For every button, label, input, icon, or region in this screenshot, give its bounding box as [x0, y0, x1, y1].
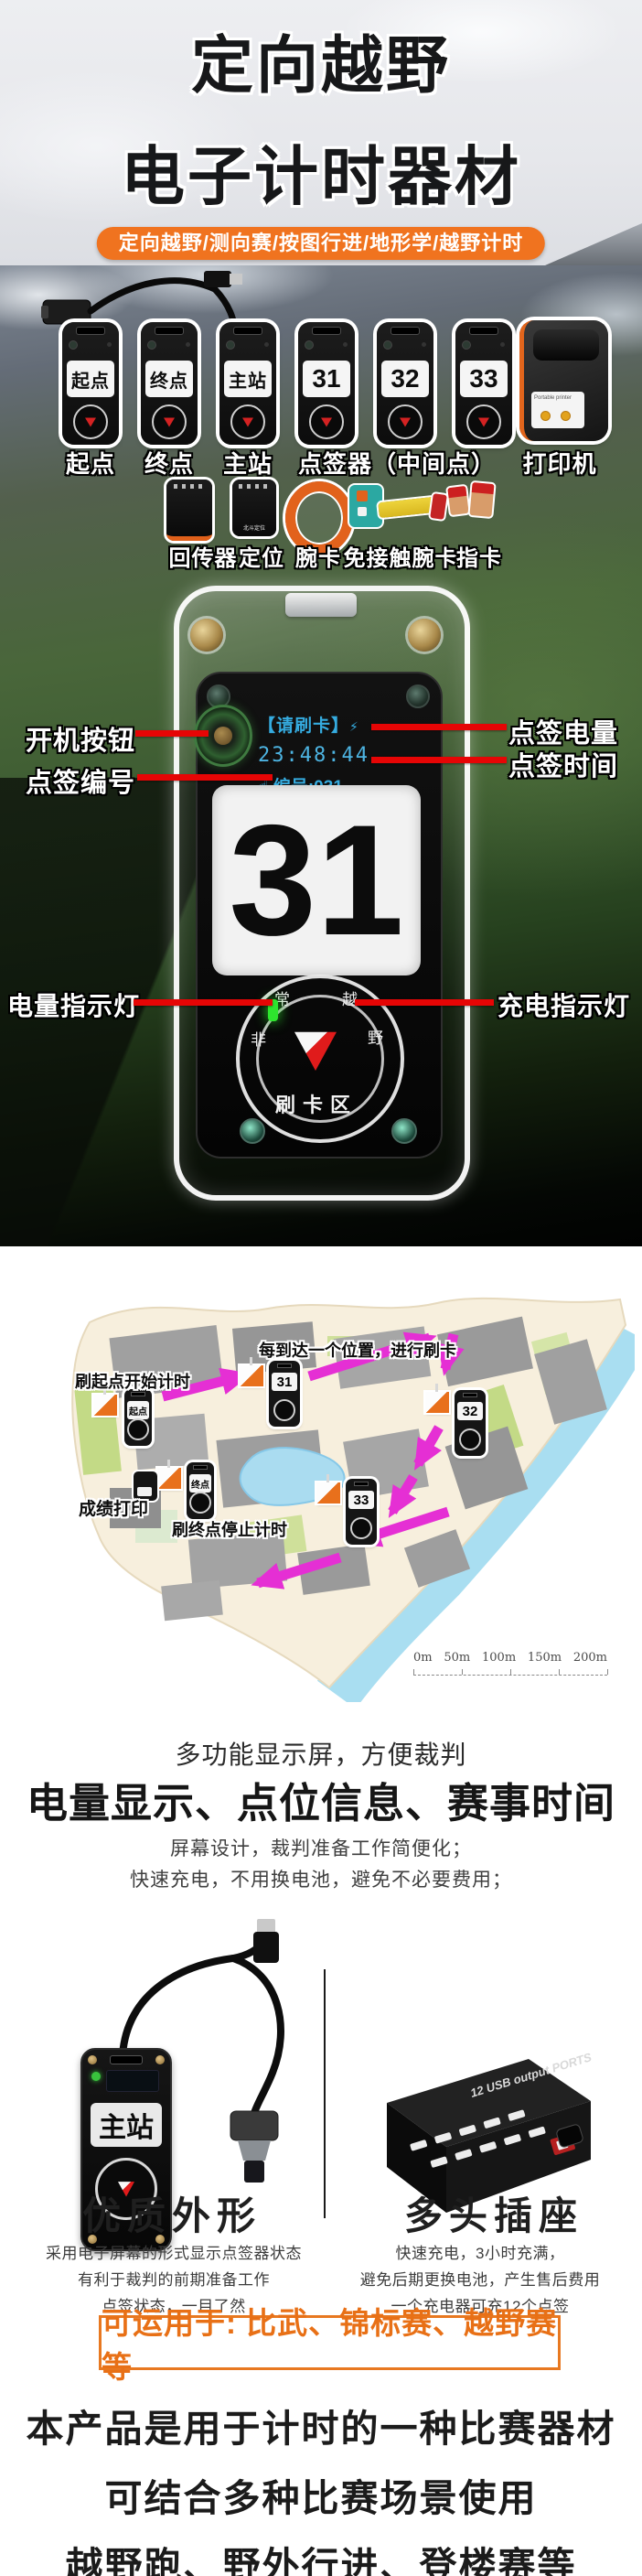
- feature-headline-large: 电量显示、点位信息、赛事时间: [0, 1770, 642, 1829]
- device-label: 起点: [67, 361, 114, 397]
- mountain-silhouette: [545, 223, 642, 265]
- brass-screw: [408, 619, 441, 652]
- device-master: 主站: [219, 322, 276, 445]
- gps-leds: [239, 484, 270, 489]
- map-note-top: 每到达一个位置，进行刷卡: [259, 1338, 456, 1362]
- scale-label: 0m: [413, 1651, 433, 1665]
- callout-line-battery-led: [134, 999, 273, 1006]
- corner-screw: [155, 2055, 165, 2064]
- swipe-dial: [152, 404, 187, 439]
- scale-label: 100m: [482, 1651, 516, 1665]
- device-label: 33: [460, 361, 508, 397]
- scale-tick: [559, 1669, 560, 1675]
- device-checkpoint-32: 32: [377, 322, 433, 445]
- map-scale-bar: 0m 50m 100m 150m 200m: [413, 1651, 607, 1676]
- buckle-window: [358, 507, 367, 516]
- product-title-left: 优质外形: [71, 2185, 273, 2241]
- swipe-dial: [73, 404, 108, 439]
- callout-line-power: [135, 730, 209, 737]
- contactless-buckle: [349, 485, 382, 527]
- desc-line: 采用电子屏幕的形式显示点签器状态: [23, 2240, 325, 2267]
- caption-master: 主站: [207, 446, 289, 480]
- device-slot: [312, 327, 341, 335]
- desc-line: 快速充电，3小时充满，: [338, 2240, 622, 2267]
- swipe-dial: [466, 404, 501, 439]
- device-finish: 终点: [141, 322, 198, 445]
- map-device-dial: [459, 1428, 481, 1450]
- scale-label: 50m: [444, 1651, 470, 1665]
- sensor-dot: [343, 342, 348, 347]
- device-start: 起点: [62, 322, 119, 445]
- map-device-dial: [127, 1418, 149, 1440]
- sensor-dot: [500, 342, 505, 347]
- callout-tag-number: 点签编号: [13, 761, 135, 800]
- map-station-32: 32: [455, 1390, 486, 1456]
- map-station-label: 起点: [127, 1401, 149, 1419]
- led-dot: [69, 340, 78, 350]
- device-label: 主站: [224, 361, 272, 397]
- hero-section: 定向越野 电子计时器材 定向越野/测向赛/按图行进/地形学/越野计时: [0, 0, 642, 265]
- scale-label: 150m: [528, 1651, 562, 1665]
- control-flag-33: [316, 1482, 340, 1504]
- control-flag-finish: [157, 1468, 181, 1489]
- map-station-label: 31: [272, 1373, 297, 1391]
- map-note-print: 成绩打印: [79, 1495, 148, 1520]
- map-station-31: 31: [269, 1361, 300, 1427]
- swipe-dial: [388, 404, 423, 439]
- product-detail-page: 定向越野 电子计时器材 定向越野/测向赛/按图行进/地形学/越野计时 起点 终点…: [0, 0, 642, 2576]
- map-station-label: 32: [457, 1402, 483, 1420]
- power-led: [91, 2072, 101, 2081]
- device-checkpoint-33: 33: [455, 322, 512, 445]
- bottom-screw: [240, 1118, 265, 1144]
- applications-box: 可运用于: 比武、锦标赛、越野赛等: [99, 2315, 561, 2370]
- callout-power-button: 开机按钮: [16, 719, 135, 758]
- prompt-text: 【请刷卡】: [258, 717, 349, 736]
- caption-printer: 打印机: [505, 446, 615, 480]
- caption-start: 起点: [49, 446, 132, 480]
- swipe-area-label: 刷卡区: [247, 1089, 386, 1118]
- battery-charge-icon: ⚡: [349, 719, 359, 734]
- printer-label: Portable printer: [531, 392, 584, 428]
- device-slot: [391, 327, 420, 335]
- control-flag-31: [240, 1365, 263, 1386]
- sensor-dot: [186, 342, 190, 347]
- device-slot: [76, 327, 105, 335]
- led-dot: [462, 340, 471, 350]
- led-dot: [226, 340, 235, 350]
- dial-char-4: 野: [368, 1025, 383, 1048]
- callout-battery-led: 电量指示灯: [7, 986, 140, 1023]
- corner-screw: [88, 2055, 97, 2064]
- category-banner: 定向越野/测向赛/按图行进/地形学/越野计时: [97, 227, 545, 260]
- caption-wrist-card: 腕卡: [285, 540, 351, 572]
- map-station-label: 33: [348, 1491, 374, 1509]
- scale-tick: [413, 1669, 414, 1675]
- sensor-dot: [264, 342, 269, 347]
- map-device-slot: [193, 1465, 208, 1470]
- map-station-label: 终点: [189, 1474, 211, 1493]
- device-label: 32: [381, 361, 429, 397]
- map-device-dial: [273, 1399, 295, 1421]
- desc-line: 有利于裁判的前期准备工作: [23, 2267, 325, 2293]
- caption-checkpoints: 点签器（中间点）: [282, 446, 512, 480]
- map-station-start: 起点: [124, 1389, 152, 1446]
- led-dot: [305, 340, 314, 350]
- map-note-start: 刷起点开始计时: [75, 1369, 190, 1393]
- finger-card-1: [447, 486, 469, 515]
- relay-leds: [174, 484, 205, 489]
- footer-line-3: 越野跑、野外行进、登楼赛等: [0, 2535, 642, 2576]
- map-device-dial: [350, 1517, 372, 1539]
- relay-device: [166, 480, 212, 541]
- dial-char-3: 越: [342, 986, 358, 1009]
- brass-screw: [190, 619, 223, 652]
- map-station-33: 33: [346, 1479, 377, 1545]
- paper-roll: [533, 329, 599, 361]
- callout-line-charge-led: [355, 999, 494, 1006]
- map-note-finish: 刷终点停止计时: [172, 1517, 287, 1541]
- control-flag-32: [425, 1392, 449, 1413]
- led-dot: [383, 340, 392, 350]
- caption-contactless: 免接触腕卡: [343, 540, 458, 572]
- callout-line-number: [137, 774, 273, 781]
- device-slot: [110, 2055, 143, 2064]
- printer-dot: [561, 411, 571, 421]
- footer-line-2: 可结合多种比赛场景使用: [0, 2467, 642, 2522]
- page-title-line2: 电子计时器材: [0, 145, 642, 209]
- bottom-screw: [391, 1118, 417, 1144]
- footer-line-1: 本产品是用于计时的一种比赛器材: [0, 2398, 642, 2452]
- device-slot: [155, 327, 184, 335]
- buckle-chip: [357, 490, 368, 501]
- dial-char-1: 非: [251, 1027, 266, 1050]
- printer-dot: [540, 411, 551, 421]
- feature-headline-small: 多功能显示屏，方便裁判: [0, 1735, 642, 1772]
- map-device-dial: [189, 1492, 211, 1514]
- callout-charge-led: 充电指示灯: [498, 986, 630, 1023]
- control-flag-start: [93, 1395, 117, 1416]
- face-screw: [406, 684, 430, 708]
- map-station-finish: 终点: [187, 1462, 214, 1519]
- device-label: 终点: [145, 361, 193, 397]
- swipe-dial: [309, 404, 344, 439]
- caption-finger-card: 指卡: [446, 540, 512, 572]
- master-plate: 主站: [91, 2103, 162, 2147]
- led-dot: [147, 340, 156, 350]
- map-device-slot: [277, 1363, 292, 1368]
- callout-tag-time: 点签时间: [508, 745, 618, 783]
- device-slot: [233, 327, 262, 335]
- column-divider: [324, 1969, 326, 2218]
- scale-tick: [510, 1669, 511, 1675]
- sensor-dot: [107, 342, 112, 347]
- callout-line-time: [371, 757, 507, 763]
- map-device-slot: [463, 1393, 477, 1397]
- device-slot: [469, 327, 498, 335]
- scale-tick: [462, 1669, 463, 1675]
- feature-sub2: 快速充电，不用换电池，避免不必要费用；: [0, 1865, 642, 1892]
- device-label: 31: [303, 361, 350, 397]
- map-device-slot: [354, 1482, 369, 1486]
- swipe-dial: [230, 404, 265, 439]
- gps-device: 北斗定位: [232, 480, 276, 536]
- callout-line-battery: [371, 724, 507, 730]
- mini-screen: [106, 2070, 159, 2092]
- page-title-line1: 定向越野: [0, 35, 642, 97]
- product-title-right: 多头插座: [384, 2185, 604, 2241]
- display-time: 23:48:44: [258, 744, 433, 767]
- device-checkpoint-31: 31: [298, 322, 355, 445]
- scale-tick: [607, 1669, 608, 1675]
- caption-finish: 终点: [128, 446, 210, 480]
- printer-device: Portable printer: [519, 320, 608, 441]
- sensor-dot: [422, 342, 426, 347]
- checkpoint-number-plate: 31: [212, 785, 421, 975]
- gps-device-text: 北斗定位: [232, 523, 276, 532]
- feature-sub1: 屏幕设计，裁判准备工作简便化；: [0, 1834, 642, 1861]
- finger-card-2: [469, 482, 494, 517]
- scale-rule: [413, 1668, 607, 1676]
- desc-line: 避免后期更换电池，产生售后费用: [338, 2267, 622, 2293]
- scale-label: 200m: [573, 1651, 607, 1665]
